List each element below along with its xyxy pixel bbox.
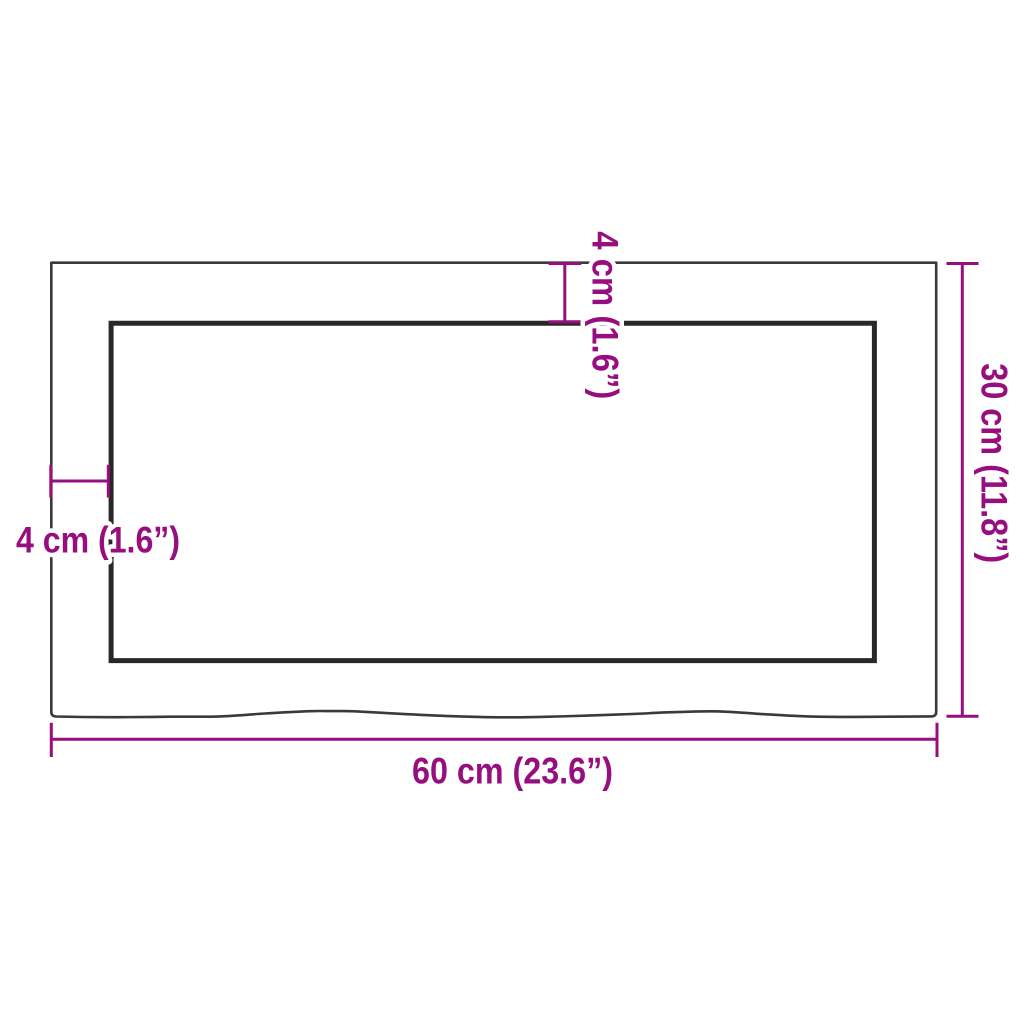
svg-text:4 cm (1.6”): 4 cm (1.6”) [585, 231, 627, 399]
svg-text:60 cm (23.6”): 60 cm (23.6”) [412, 750, 613, 792]
svg-text:30 cm (11.8”): 30 cm (11.8”) [974, 363, 1016, 563]
svg-text:4 cm (1.6”): 4 cm (1.6”) [16, 518, 180, 560]
